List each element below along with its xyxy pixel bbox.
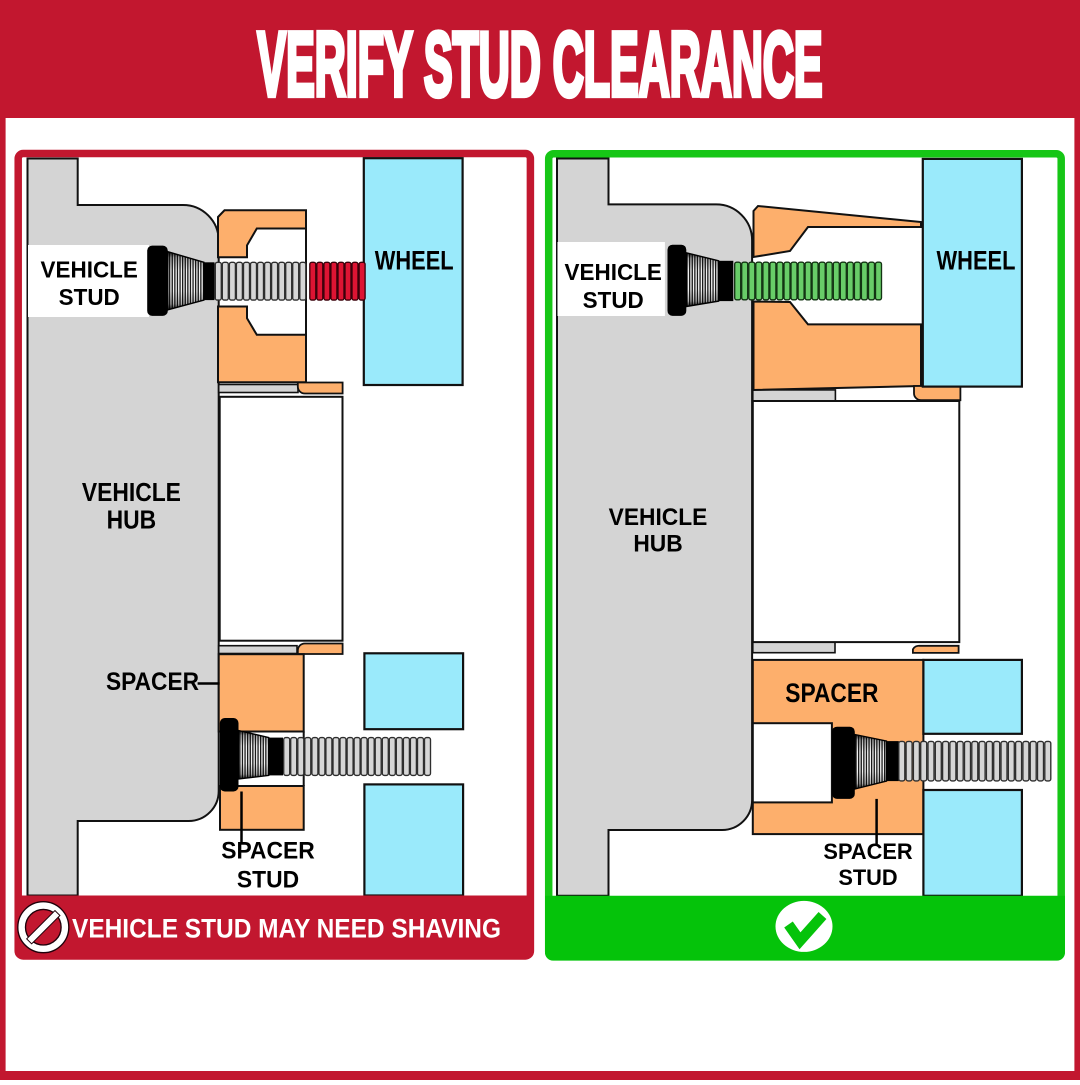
svg-text:VEHICLE: VEHICLE xyxy=(41,256,138,283)
svg-text:HUB: HUB xyxy=(107,506,157,535)
svg-text:VEHICLE STUD MAY NEED SHAVING: VEHICLE STUD MAY NEED SHAVING xyxy=(72,914,501,944)
svg-text:WHEEL: WHEEL xyxy=(937,246,1016,276)
svg-text:WHEEL: WHEEL xyxy=(375,246,454,276)
svg-text:SPACER: SPACER xyxy=(221,837,314,864)
svg-text:HUB: HUB xyxy=(633,530,682,557)
svg-text:VERIFY STUD CLEARANCE: VERIFY STUD CLEARANCE xyxy=(257,15,822,116)
svg-text:VEHICLE: VEHICLE xyxy=(609,503,708,530)
svg-text:STUD: STUD xyxy=(59,284,120,311)
svg-text:STUD: STUD xyxy=(583,286,644,313)
svg-text:SPACER: SPACER xyxy=(785,678,878,708)
svg-text:VEHICLE: VEHICLE xyxy=(565,258,662,285)
svg-text:SPACER: SPACER xyxy=(106,668,199,696)
svg-text:STUD: STUD xyxy=(237,866,299,893)
svg-text:VEHICLE: VEHICLE xyxy=(82,479,181,508)
svg-text:SPACER: SPACER xyxy=(823,839,912,864)
svg-text:STUD: STUD xyxy=(838,865,897,890)
